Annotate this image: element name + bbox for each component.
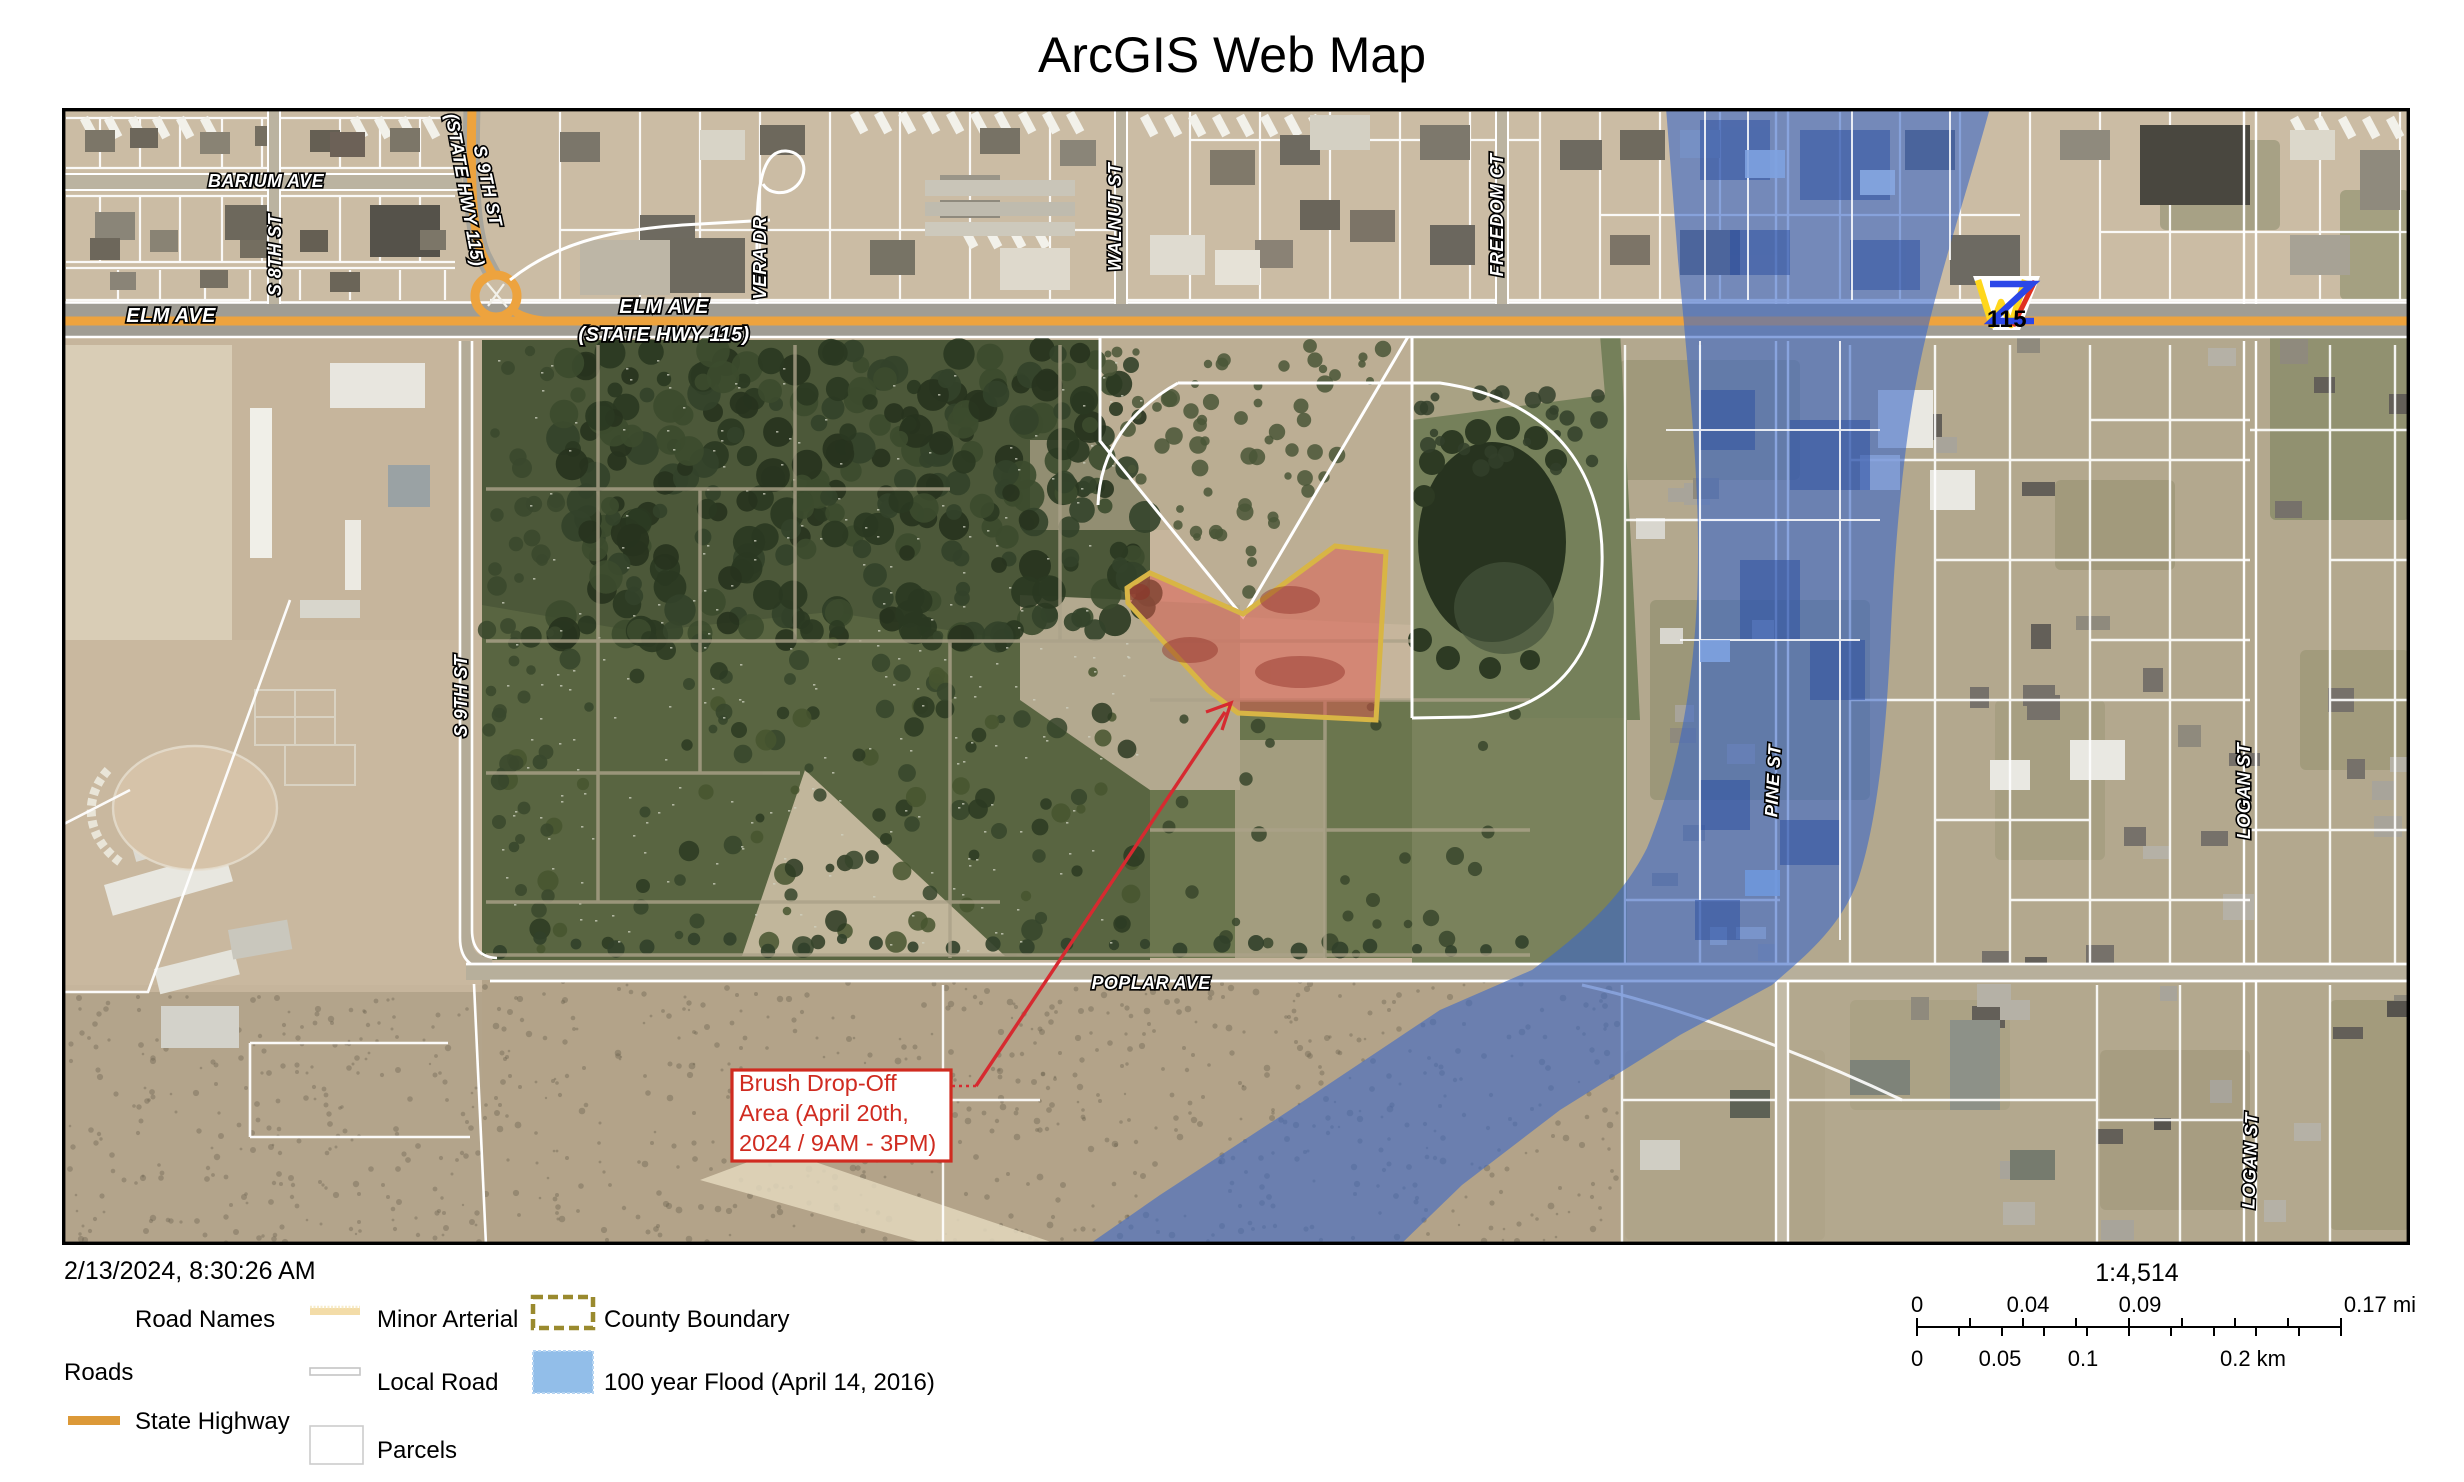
svg-text:LOGAN ST: LOGAN ST [2238,1111,2261,1209]
svg-text:Road Names: Road Names [135,1306,275,1333]
svg-text:ELM AVE: ELM AVE [126,305,216,327]
svg-text:Local Road: Local Road [377,1369,498,1396]
svg-text:(STATE HWY 115): (STATE HWY 115) [578,324,749,346]
svg-text:State Highway: State Highway [135,1408,290,1435]
svg-text:0.2 km: 0.2 km [2220,1346,2286,1371]
svg-text:0: 0 [1911,1346,1923,1371]
svg-text:2024 / 9AM - 3PM): 2024 / 9AM - 3PM) [739,1130,936,1156]
svg-text:WALNUT ST: WALNUT ST [1105,161,1125,271]
svg-text:0.05: 0.05 [1979,1346,2022,1371]
svg-text:0: 0 [1911,1292,1923,1317]
svg-text:Parcels: Parcels [377,1437,457,1464]
svg-text:PINE ST: PINE ST [1761,742,1785,817]
svg-text:S 9TH ST: S 9TH ST [451,653,471,737]
svg-text:POPLAR AVE: POPLAR AVE [1091,973,1211,993]
svg-text:S 8TH ST: S 8TH ST [265,212,285,296]
svg-text:FREEDOM CT: FREEDOM CT [1487,152,1507,277]
svg-text:0.04: 0.04 [2007,1292,2050,1317]
svg-text:ArcGIS Web Map: ArcGIS Web Map [1038,27,1426,83]
svg-text:Brush Drop-Off: Brush Drop-Off [739,1070,897,1096]
svg-text:100 year Flood (April 14, 2016: 100 year Flood (April 14, 2016) [604,1369,935,1396]
svg-text:BARIUM AVE: BARIUM AVE [208,171,325,191]
svg-text:LOGAN ST: LOGAN ST [2234,741,2254,839]
svg-text:2/13/2024, 8:30:26 AM: 2/13/2024, 8:30:26 AM [64,1257,316,1285]
svg-text:Minor Arterial: Minor Arterial [377,1306,518,1333]
svg-text:0.17 mi: 0.17 mi [2344,1292,2416,1317]
svg-text:Area (April 20th,: Area (April 20th, [739,1100,909,1126]
svg-text:115: 115 [1987,306,2027,333]
svg-text:0.1: 0.1 [2068,1346,2099,1371]
svg-text:0.09: 0.09 [2119,1292,2162,1317]
svg-text:County Boundary: County Boundary [604,1306,789,1333]
svg-text:ELM AVE: ELM AVE [619,296,709,318]
svg-text:VERA DR: VERA DR [750,216,770,299]
svg-text:Roads: Roads [64,1359,133,1386]
svg-text:1:4,514: 1:4,514 [2095,1259,2179,1287]
